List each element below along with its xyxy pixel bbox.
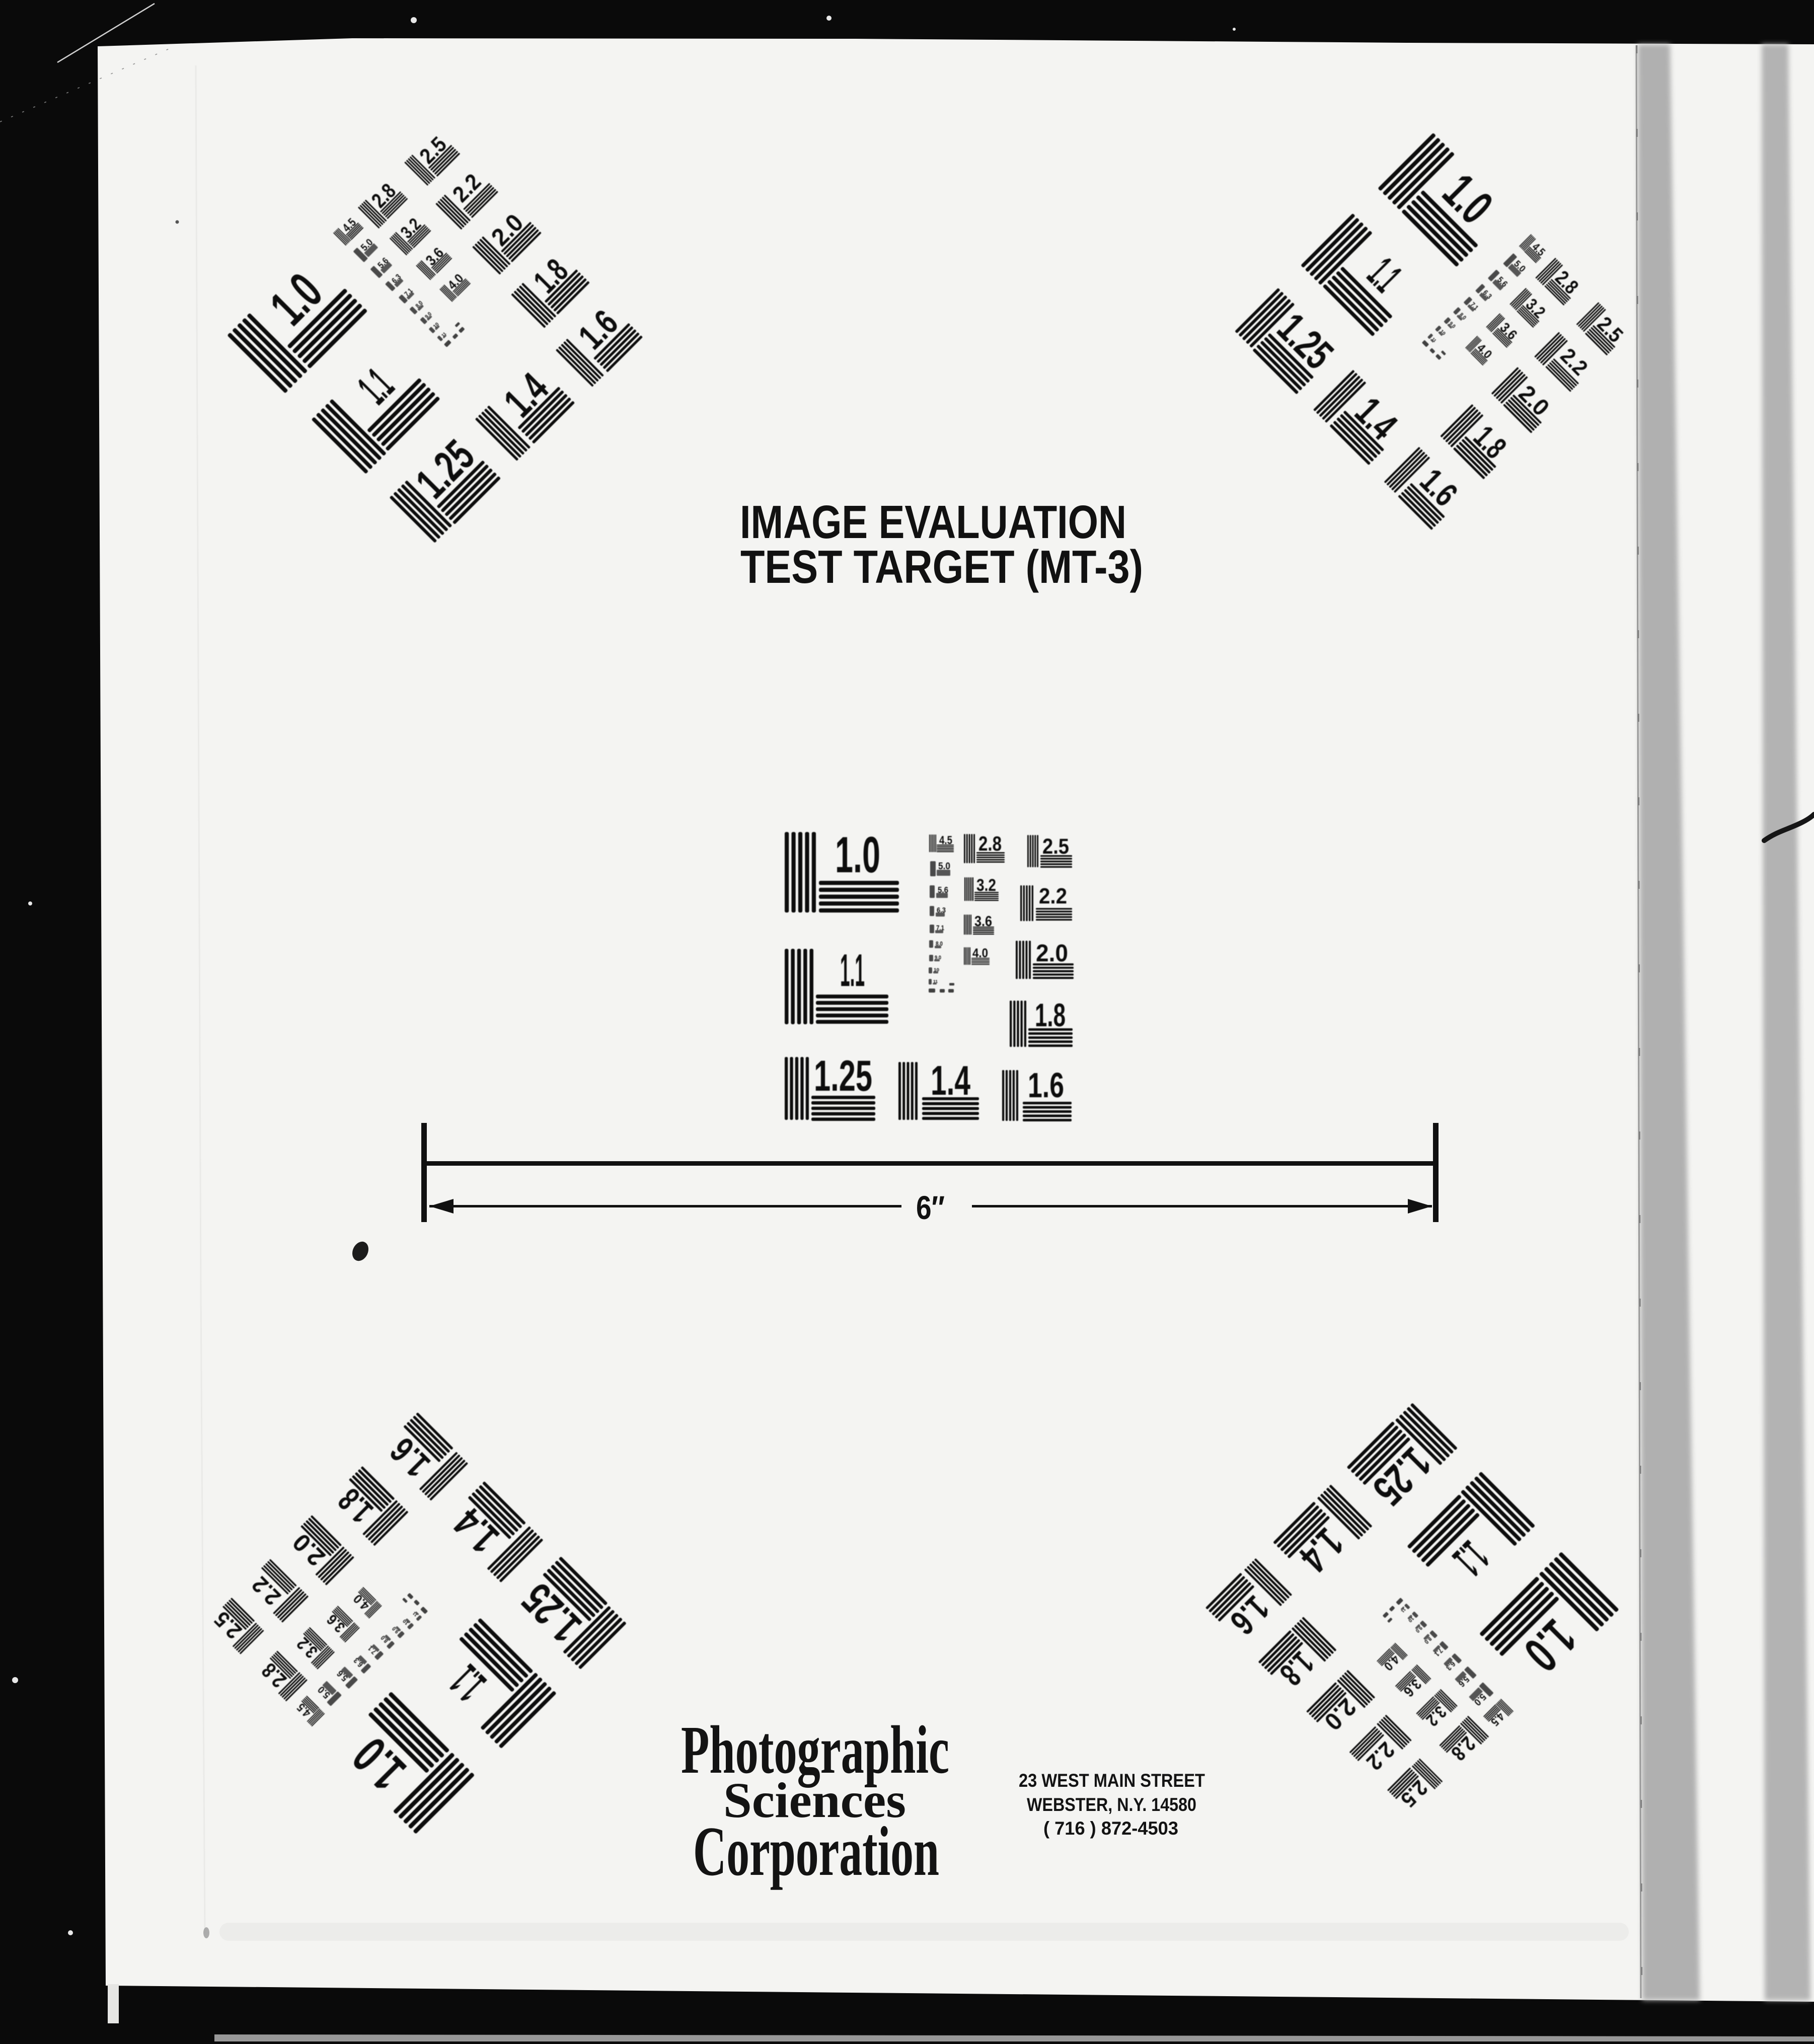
svg-text:6″: 6″ bbox=[916, 1189, 945, 1226]
svg-text:23 WEST MAIN STREET: 23 WEST MAIN STREET bbox=[1019, 1770, 1205, 1791]
svg-text:Corporation: Corporation bbox=[693, 1812, 939, 1890]
svg-text:WEBSTER, N.Y. 14580: WEBSTER, N.Y. 14580 bbox=[1027, 1794, 1196, 1815]
svg-text:TEST TARGET (MT-3): TEST TARGET (MT-3) bbox=[740, 541, 1143, 593]
svg-text:( 716 ) 872-4503: ( 716 ) 872-4503 bbox=[1043, 1818, 1178, 1839]
